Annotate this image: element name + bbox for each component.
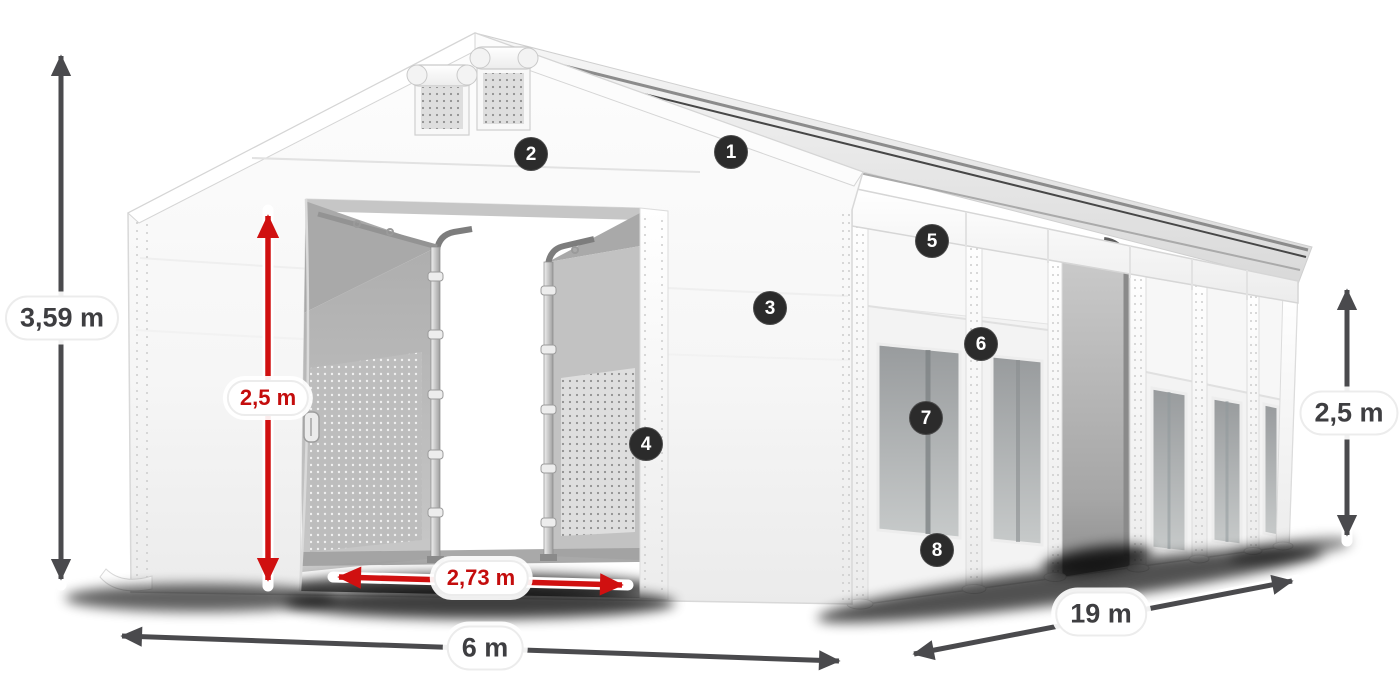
side-window [1264,404,1278,536]
tent-illustration [0,0,1400,700]
width-label: 6 m [447,626,524,671]
side-window [878,344,960,538]
gable-vent-left [407,65,477,135]
callout-badge-4[interactable]: 4 [629,427,663,461]
side-window [1152,388,1186,552]
callout-badge-7[interactable]: 7 [909,401,943,435]
clearance-height-label: 2,5 m [227,380,309,416]
callout-badge-1[interactable]: 1 [714,135,748,169]
side-window [1213,398,1241,545]
callout-badge-2[interactable]: 2 [514,137,548,171]
side-window [992,356,1042,545]
side-height-label: 2,5 m [1299,391,1398,436]
door-frame-strip [640,208,668,600]
total-height-label: 3,59 m [5,296,119,341]
callout-badge-5[interactable]: 5 [915,224,949,258]
interior-mesh-window [561,368,635,536]
front-door-opening [280,199,660,603]
callout-badge-6[interactable]: 6 [964,327,998,361]
gable-vent-right [470,47,538,130]
callout-badge-8[interactable]: 8 [920,533,954,567]
side-open-bay [1062,240,1130,577]
tent-dimension-diagram: 1 2 3 4 5 6 7 8 3,59 m 2,5 m 2,73 m 6 m … [0,0,1400,700]
callout-badge-3[interactable]: 3 [753,291,787,325]
door-width-label: 2,73 m [434,560,529,596]
interior-mesh-window [310,352,422,552]
length-label: 19 m [1055,592,1147,637]
